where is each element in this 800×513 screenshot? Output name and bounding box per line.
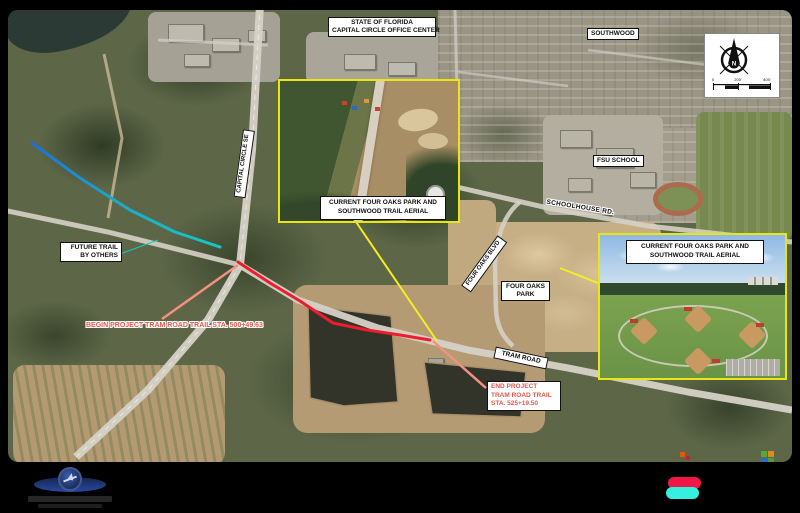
begin-project-line3: STA. 500+49.63 [212, 322, 263, 329]
inset-right-caption-line1: CURRENT FOUR OAKS PARK AND [630, 243, 760, 252]
agency-logo [28, 466, 112, 510]
inset-right-parking [726, 359, 780, 376]
four-oaks-park-line2: PARK [505, 291, 546, 299]
inset-right-aerial-photo: CURRENT FOUR OAKS PARK AND SOUTHWOOD TRA… [598, 233, 787, 380]
scale-bar-line [713, 84, 771, 85]
logo-tagline-bar [38, 504, 102, 508]
four-oaks-park-label: FOUR OAKS PARK [501, 281, 550, 301]
office-center-label: STATE OF FLORIDA CAPITAL CIRCLE OFFICE C… [328, 17, 436, 37]
fsu-school-text: FSU SCHOOL [597, 157, 640, 165]
residential-street-3 [588, 50, 708, 65]
scale-bar-seg2 [749, 86, 771, 90]
inset-left-construction-2 [352, 106, 357, 110]
office-drive [158, 40, 268, 45]
scale-tick-400: 400' [763, 77, 771, 82]
watermark-right [761, 451, 775, 462]
inset-left-construction-3 [364, 99, 369, 103]
southwood-label: SOUTHWOOD [587, 28, 639, 40]
inset-left-sand-2 [418, 133, 448, 149]
office-center-line1: STATE OF FLORIDA [332, 19, 432, 27]
four-oaks-park-line1: FOUR OAKS [505, 283, 546, 291]
badge-cyan-bar [666, 487, 699, 499]
future-trail-callout: FUTURE TRAIL BY OTHERS [60, 242, 122, 262]
inset-left-caption: CURRENT FOUR OAKS PARK AND SOUTHWOOD TRA… [320, 196, 446, 220]
lake-top-left [8, 10, 130, 53]
fsu-school-label: FSU SCHOOL [593, 155, 644, 167]
corner-badge [666, 477, 702, 501]
begin-project-callout: BEGIN PROJECT TRAM ROAD TRAIL STA. 500+4… [86, 321, 263, 330]
end-project-line1: END PROJECT [491, 383, 557, 392]
west-road-line [8, 210, 240, 265]
end-project-callout: END PROJECT TRAM ROAD TRAIL STA. 525+19.… [487, 381, 561, 411]
inset-right-leader-yellow [560, 268, 598, 283]
inset-right-caption: CURRENT FOUR OAKS PARK AND SOUTHWOOD TRA… [626, 240, 764, 264]
southwood-text: SOUTHWOOD [591, 30, 635, 38]
future-trail-line1: FUTURE TRAIL [64, 244, 118, 252]
logo-globe-icon [58, 467, 82, 491]
inset-right-caption-line2: SOUTHWOOD TRAIL AERIAL [630, 252, 760, 261]
inset-left-construction-1 [342, 101, 347, 105]
inset-right-dugout-2 [684, 307, 692, 311]
inset-left-caption-line1: CURRENT FOUR OAKS PARK AND [324, 199, 442, 208]
inset-right-dugout-4 [712, 359, 720, 363]
residential-street-2 [458, 72, 568, 86]
office-center-line2: CAPITAL CIRCLE OFFICE CENTER [332, 27, 432, 35]
scale-tick-200: 200' [734, 77, 742, 82]
end-project-line3: STA. 525+19.50 [491, 400, 557, 409]
scale-bar-seg1 [725, 86, 738, 90]
scale-tick-0: 0 [712, 77, 715, 82]
inset-left-construction-4 [375, 107, 380, 111]
logo-wordmark-bar [28, 496, 112, 502]
compass-rose-icon: N 0 200' 400' [705, 34, 779, 97]
begin-project-line1: BEGIN PROJECT [86, 322, 143, 329]
inset-left-caption-line2: SOUTHWOOD TRAIL AERIAL [324, 208, 442, 217]
watermark-left [680, 452, 692, 462]
future-trail-line [32, 143, 220, 247]
inset-right-distant-buildings [748, 277, 778, 285]
plan-sheet: STATE OF FLORIDA CAPITAL CIRCLE OFFICE C… [0, 0, 800, 513]
north-arrow-scale-box: N 0 200' 400' [704, 33, 780, 98]
begin-project-line2: TRAM ROAD TRAIL [145, 322, 210, 329]
north-letter: N [732, 62, 736, 68]
aerial-map: STATE OF FLORIDA CAPITAL CIRCLE OFFICE C… [8, 10, 792, 462]
inset-right-dugout-1 [630, 319, 638, 323]
four-oaks-blvd-line [495, 202, 520, 346]
inset-left-aerial-photo: CURRENT FOUR OAKS PARK AND SOUTHWOOD TRA… [278, 79, 460, 223]
future-trail-line2: BY OTHERS [64, 252, 118, 260]
end-project-line2: TRAM ROAD TRAIL [491, 392, 557, 401]
inset-right-dugout-3 [756, 323, 764, 327]
